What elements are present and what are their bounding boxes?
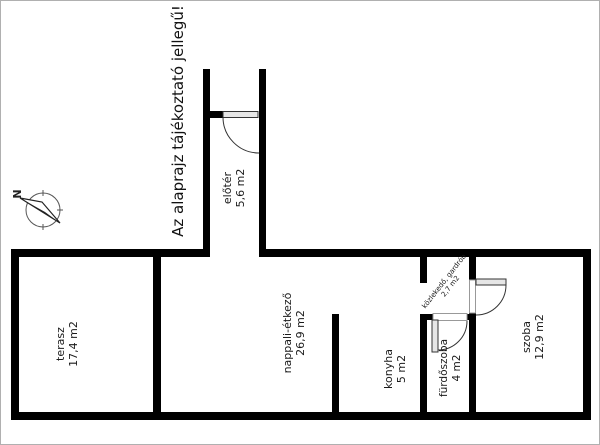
door-leaf-szoba (476, 279, 506, 285)
wall-corridor-left (203, 69, 210, 257)
room-name: terasz (54, 274, 67, 414)
room-name: fürdőszoba (438, 298, 451, 438)
room-area: 5,6 m2 (234, 118, 247, 258)
door-leaf-eloter (223, 112, 258, 118)
door-threshold-szoba (470, 280, 476, 313)
wall-top-left (11, 249, 203, 257)
plan-disclaimer-text: Az alaprajz tájékoztató jellegű! (168, 1, 188, 241)
wall-terasz-nappali (153, 249, 161, 420)
room-area: 4 m2 (451, 298, 464, 438)
room-name: szoba (520, 267, 533, 407)
compass-north-label: N (11, 187, 25, 201)
door-swing-szoba (476, 285, 506, 315)
room-label-konyha: konyha 5 m2 (380, 299, 410, 439)
room-area: 12,9 m2 (533, 267, 546, 407)
room-area: 17,4 m2 (67, 274, 80, 414)
wall-top-right (266, 249, 591, 257)
wall-corridor-right (259, 69, 266, 257)
room-label-eloter: előtér 5,6 m2 (219, 118, 249, 258)
room-area: 5 m2 (395, 299, 408, 439)
wall-kozlekedo-stub (420, 257, 427, 283)
floorplan-image: N Az alaprajz tájékoztató jellegű! teras… (0, 0, 600, 445)
wall-bottom (11, 412, 591, 420)
room-name: nappali-étkező (281, 263, 294, 403)
room-name: konyha (382, 299, 395, 439)
wall-szoba-left (469, 312, 476, 420)
room-label-terasz: terasz 17,4 m2 (52, 274, 82, 414)
room-label-nappali-etkezo: nappali-étkező 26,9 m2 (279, 263, 309, 403)
wall-nappali-konyha (332, 314, 339, 420)
room-area: 26,9 m2 (294, 263, 307, 403)
room-label-szoba: szoba 12,9 m2 (518, 267, 548, 407)
door-szoba (470, 279, 507, 315)
room-name: előtér (221, 118, 234, 258)
wall-entry-door-stub (203, 111, 223, 118)
wall-right (583, 249, 591, 420)
wall-konyha-furdoszoba (420, 314, 427, 420)
wall-left (11, 249, 19, 420)
room-label-furdoszoba: fürdőszoba 4 m2 (436, 298, 466, 438)
